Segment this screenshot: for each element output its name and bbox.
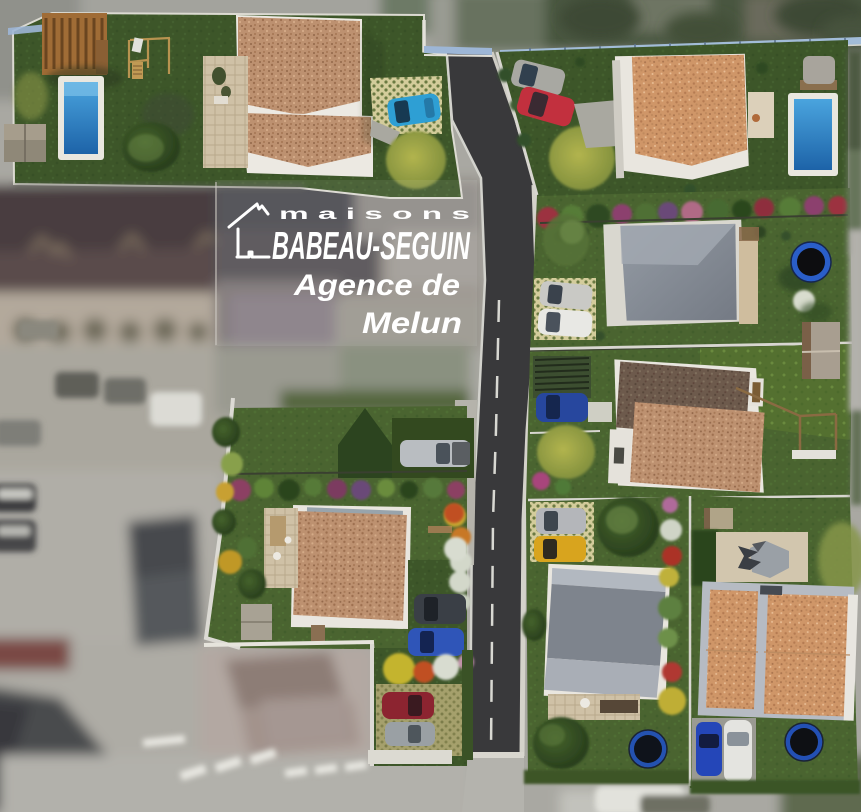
svg-text:m a i s o n s: m a i s o n s <box>279 206 470 223</box>
svg-text:BABEAU-SEGUIN: BABEAU-SEGUIN <box>272 225 470 268</box>
svg-text:Melun: Melun <box>362 307 462 340</box>
svg-text:Agence de: Agence de <box>293 269 460 302</box>
